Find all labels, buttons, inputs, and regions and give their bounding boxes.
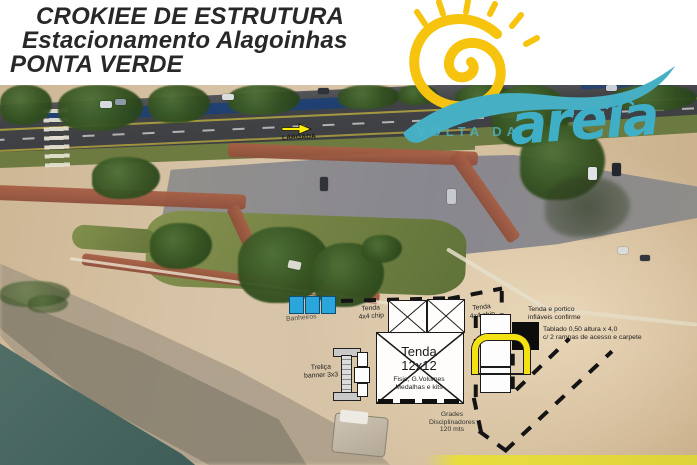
small-box [357,352,368,367]
logo-tagline: VOLTA DA [417,124,521,139]
small-box [357,383,368,397]
tenda-4x4-right [427,299,465,333]
tenda-12x12-sub: Fisio, G.Volumes Medalhas e kits [376,376,462,391]
banheiro-box [305,296,320,314]
trelica-label: Treliça banner 3x3 [301,363,342,380]
banheiro-box [321,296,336,314]
tenda-4x4-left-label: Tenda 4x4 chip [354,304,389,322]
banheiro-box [289,296,304,314]
small-box [354,367,370,383]
tablado-label: Tablado 0,50 altura x 4,0 c/ 2 rampas de… [543,326,663,341]
trelica-column [341,355,352,395]
tenda-12x12-front-dashes [378,399,460,404]
portico-label: Tenda e portico infláveis confirme [528,306,598,321]
tenda-4x4-left [388,300,427,334]
portico-arch [472,334,530,374]
sun-icon [414,1,537,106]
grades-label: Grades Disciplinadores 120 mts [427,411,477,434]
logo-script: areia [508,83,660,157]
largada-arrow-icon [282,123,312,135]
tenda-12x12-title: Tenda 12x12 [376,345,462,373]
croqui-page: CROKIEE DE ESTRUTURA Estacionamento Alag… [0,0,697,465]
